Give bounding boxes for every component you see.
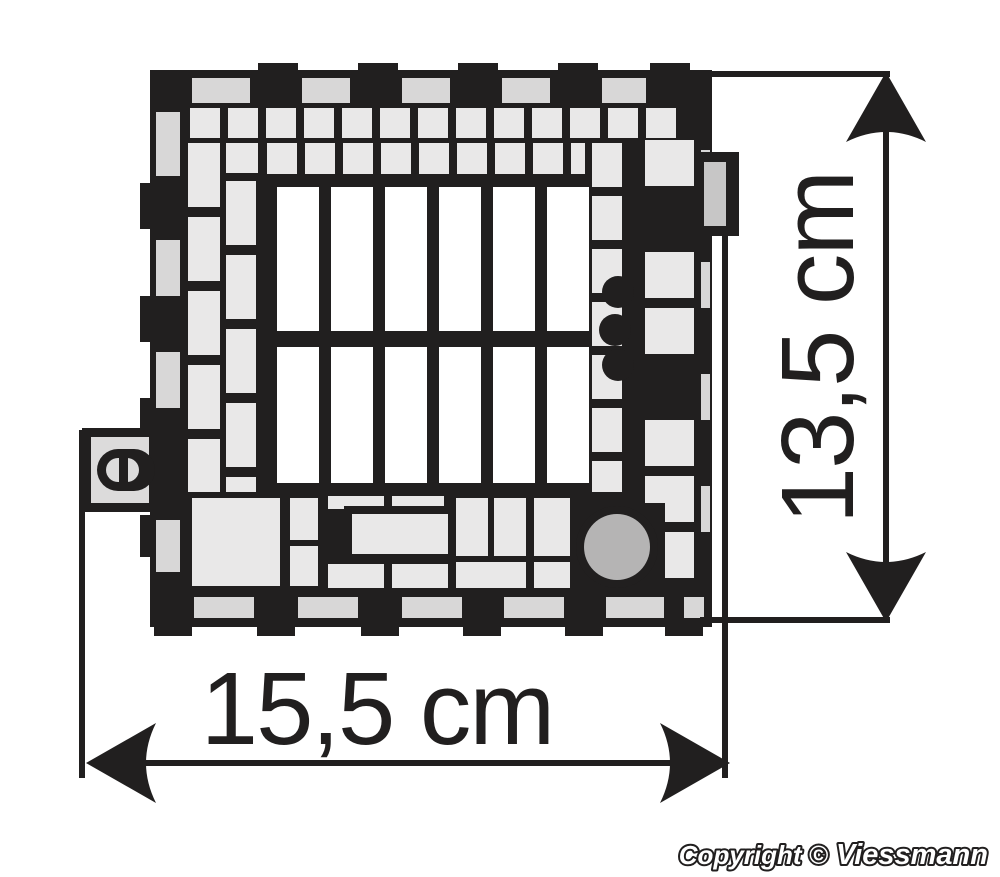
- height-label: 13,5 cm: [760, 172, 875, 524]
- arrow-left-icon: [86, 723, 156, 803]
- brand-logo-text: Viessmann: [836, 839, 988, 871]
- copyright-prefix: Copyright ©: [679, 840, 829, 870]
- crate-large: [192, 498, 280, 586]
- technical-drawing-canvas: 13,5 cm 15,5 cm Copyright ©Viessmann: [0, 0, 1000, 877]
- barrel: [584, 514, 650, 580]
- width-label: 15,5 cm: [201, 651, 553, 766]
- gate: [256, 174, 634, 497]
- wall-letterbox: [82, 428, 158, 512]
- copyright-text: Copyright ©Viessmann: [679, 839, 988, 871]
- yard-blocks: [183, 492, 665, 592]
- arrow-up-icon: [846, 72, 926, 142]
- arrow-down-icon: [846, 552, 926, 622]
- latch-rail: [722, 232, 728, 778]
- crate-small: [352, 514, 448, 554]
- diagram-page: 13,5 cm 15,5 cm Copyright ©Viessmann: [0, 0, 1000, 877]
- hinge-pins: [599, 276, 634, 381]
- arrow-right-icon: [660, 723, 730, 803]
